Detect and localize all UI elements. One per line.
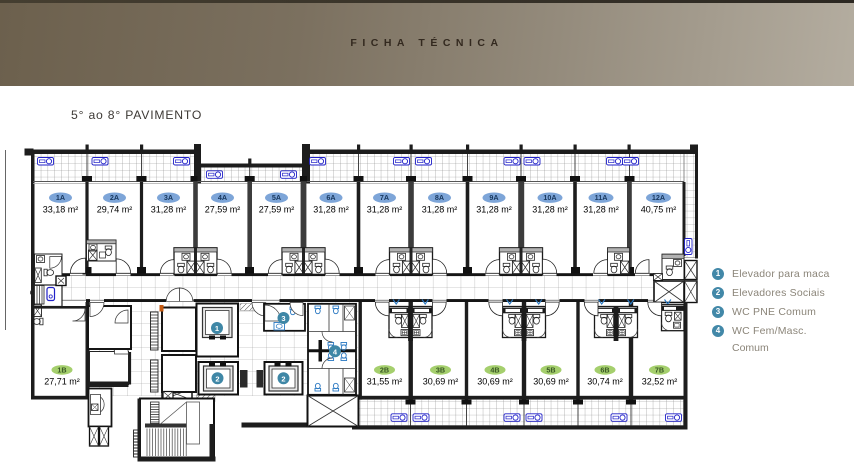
svg-text:3: 3 — [281, 314, 285, 323]
svg-text:6A: 6A — [326, 193, 335, 202]
svg-text:27,59 m²: 27,59 m² — [259, 205, 295, 215]
svg-text:12A: 12A — [652, 193, 665, 202]
svg-text:1A: 1A — [56, 193, 65, 202]
svg-text:27,59 m²: 27,59 m² — [205, 205, 241, 215]
svg-text:31,28 m²: 31,28 m² — [532, 205, 568, 215]
svg-text:1B: 1B — [57, 365, 66, 374]
svg-text:2: 2 — [281, 374, 285, 383]
svg-text:30,69 m²: 30,69 m² — [533, 376, 569, 386]
svg-text:6B: 6B — [600, 365, 609, 374]
svg-text:2: 2 — [215, 374, 219, 383]
svg-text:30,69 m²: 30,69 m² — [423, 376, 459, 386]
svg-text:31,28 m²: 31,28 m² — [422, 205, 458, 215]
svg-text:4A: 4A — [218, 193, 227, 202]
svg-text:1: 1 — [215, 324, 219, 333]
svg-text:29,74 m²: 29,74 m² — [97, 205, 133, 215]
svg-text:31,28 m²: 31,28 m² — [313, 205, 349, 215]
svg-text:2A: 2A — [110, 193, 119, 202]
svg-text:31,55 m²: 31,55 m² — [367, 376, 403, 386]
svg-text:30,69 m²: 30,69 m² — [477, 376, 513, 386]
svg-text:31,28 m²: 31,28 m² — [151, 205, 187, 215]
svg-text:2B: 2B — [380, 365, 389, 374]
svg-text:11A: 11A — [595, 193, 608, 202]
svg-text:3A: 3A — [164, 193, 173, 202]
svg-text:3B: 3B — [436, 365, 445, 374]
svg-text:5A: 5A — [272, 193, 281, 202]
svg-text:7A: 7A — [380, 193, 389, 202]
svg-text:27,71 m²: 27,71 m² — [44, 376, 80, 386]
svg-text:4B: 4B — [490, 365, 499, 374]
svg-text:9A: 9A — [489, 193, 498, 202]
svg-text:31,28 m²: 31,28 m² — [476, 205, 512, 215]
svg-text:40,75 m²: 40,75 m² — [641, 205, 677, 215]
svg-text:30,74 m²: 30,74 m² — [587, 376, 623, 386]
svg-text:31,28 m²: 31,28 m² — [367, 205, 403, 215]
svg-text:10A: 10A — [543, 193, 556, 202]
svg-text:32,52 m²: 32,52 m² — [642, 376, 678, 386]
svg-text:31,28 m²: 31,28 m² — [583, 205, 619, 215]
svg-text:33,18 m²: 33,18 m² — [43, 205, 79, 215]
svg-text:5B: 5B — [546, 365, 555, 374]
svg-text:8A: 8A — [435, 193, 444, 202]
svg-text:7B: 7B — [655, 365, 664, 374]
